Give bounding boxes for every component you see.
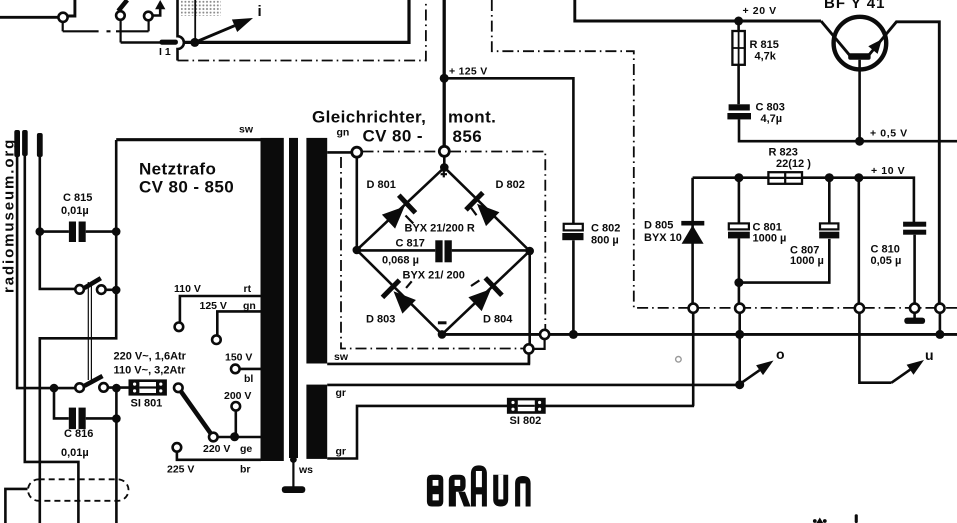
svg-text:200 V: 200 V bbox=[224, 390, 251, 402]
svg-text:R 823: R 823 bbox=[769, 147, 798, 159]
svg-text:4,7k: 4,7k bbox=[755, 51, 777, 63]
svg-text:+ 0,5 V: + 0,5 V bbox=[870, 128, 908, 140]
svg-text:+ 20 V: + 20 V bbox=[743, 5, 777, 17]
svg-text:rt: rt bbox=[244, 283, 252, 295]
svg-text:C 816: C 816 bbox=[64, 428, 93, 440]
svg-text:CV 80 - 850: CV 80 - 850 bbox=[139, 178, 234, 197]
svg-text:sw: sw bbox=[239, 124, 254, 136]
svg-text:0,01µ: 0,01µ bbox=[61, 205, 89, 217]
svg-text:220 V~, 1,6Atr: 220 V~, 1,6Atr bbox=[114, 351, 187, 363]
svg-text:150 V: 150 V bbox=[225, 352, 252, 364]
svg-text:mont.: mont. bbox=[448, 108, 496, 127]
svg-text:D 805: D 805 bbox=[644, 220, 673, 232]
svg-text:gn: gn bbox=[337, 127, 350, 139]
svg-text:110 V~, 3,2Atr: 110 V~, 3,2Atr bbox=[114, 365, 187, 377]
svg-text:ws: ws bbox=[298, 464, 313, 476]
svg-text:BYX 10: BYX 10 bbox=[644, 232, 682, 244]
svg-text:C 815: C 815 bbox=[63, 192, 92, 204]
svg-text:gr: gr bbox=[336, 446, 347, 458]
svg-text:D 801: D 801 bbox=[367, 179, 396, 191]
svg-text:D 803: D 803 bbox=[366, 314, 395, 326]
svg-text:br: br bbox=[240, 464, 251, 476]
svg-text:C 802: C 802 bbox=[591, 223, 620, 235]
svg-text:856: 856 bbox=[453, 127, 483, 146]
svg-text:o: o bbox=[776, 346, 785, 362]
svg-text:BF Y 41: BF Y 41 bbox=[824, 0, 885, 12]
svg-text:SI 801: SI 801 bbox=[131, 398, 163, 410]
svg-text:220 V: 220 V bbox=[203, 443, 230, 455]
svg-text:CV 80 -: CV 80 - bbox=[363, 127, 423, 146]
svg-text:D 802: D 802 bbox=[496, 179, 525, 191]
svg-text:SI 802: SI 802 bbox=[510, 415, 542, 427]
svg-text:radiomuseum.org: radiomuseum.org bbox=[1, 138, 18, 293]
svg-text:C 803: C 803 bbox=[756, 102, 785, 114]
svg-text:gr: gr bbox=[336, 387, 347, 399]
svg-text:110 V: 110 V bbox=[174, 283, 201, 295]
svg-text:0,068 µ: 0,068 µ bbox=[382, 255, 419, 267]
svg-text:gn: gn bbox=[243, 300, 256, 312]
svg-text:125 V: 125 V bbox=[200, 300, 227, 312]
svg-text:Netztrafo: Netztrafo bbox=[139, 160, 216, 179]
svg-text:+ 125 V: + 125 V bbox=[449, 66, 488, 78]
svg-text:ge: ge bbox=[240, 443, 252, 455]
svg-text:1000 µ: 1000 µ bbox=[753, 233, 787, 245]
svg-text:sw: sw bbox=[334, 351, 349, 363]
svg-text:u: u bbox=[925, 347, 934, 363]
svg-text:4,7µ: 4,7µ bbox=[761, 113, 783, 125]
svg-text:D 804: D 804 bbox=[483, 314, 513, 326]
svg-text:225 V: 225 V bbox=[167, 464, 194, 476]
svg-text:Gleichrichter,: Gleichrichter, bbox=[312, 108, 426, 127]
svg-text:1000 µ: 1000 µ bbox=[790, 255, 824, 267]
svg-text:bl: bl bbox=[244, 373, 253, 385]
svg-text:+ 10 V: + 10 V bbox=[871, 165, 905, 177]
svg-text:i: i bbox=[258, 3, 262, 20]
svg-text:BYX 21/ 200: BYX 21/ 200 bbox=[403, 270, 465, 282]
svg-text:BYX 21/200 R: BYX 21/200 R bbox=[405, 223, 475, 235]
svg-text:0,01µ: 0,01µ bbox=[61, 447, 89, 459]
svg-text:R 815: R 815 bbox=[750, 39, 779, 51]
svg-text:800 µ: 800 µ bbox=[591, 235, 619, 247]
svg-text:C 810: C 810 bbox=[871, 244, 900, 256]
svg-text:22(12 ): 22(12 ) bbox=[776, 158, 811, 170]
svg-text:C 817: C 817 bbox=[396, 238, 425, 250]
svg-text:I 1: I 1 bbox=[159, 46, 171, 58]
svg-text:0,05 µ: 0,05 µ bbox=[871, 255, 902, 267]
